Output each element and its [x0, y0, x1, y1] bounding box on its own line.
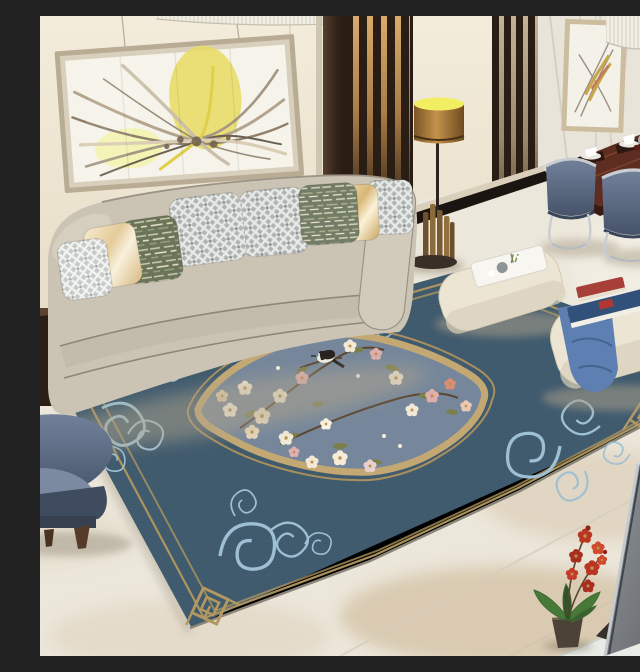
bird-eye	[318, 353, 320, 355]
dark-wall-bar	[316, 16, 348, 186]
wood-slat-divider-left	[345, 16, 413, 196]
living-room-photo	[40, 16, 640, 656]
orchid-bud	[603, 550, 607, 554]
scene-canvas	[40, 16, 640, 656]
pillow-silver-lattice	[56, 237, 114, 301]
abstract-wall-art	[55, 34, 305, 193]
lamp-pole	[436, 140, 439, 212]
shade-glow-top	[414, 98, 464, 111]
orchid-bud	[585, 525, 590, 530]
lamp-shade	[414, 98, 464, 144]
pillow-green-streak	[298, 182, 360, 246]
lamp-base-disc	[409, 255, 457, 269]
